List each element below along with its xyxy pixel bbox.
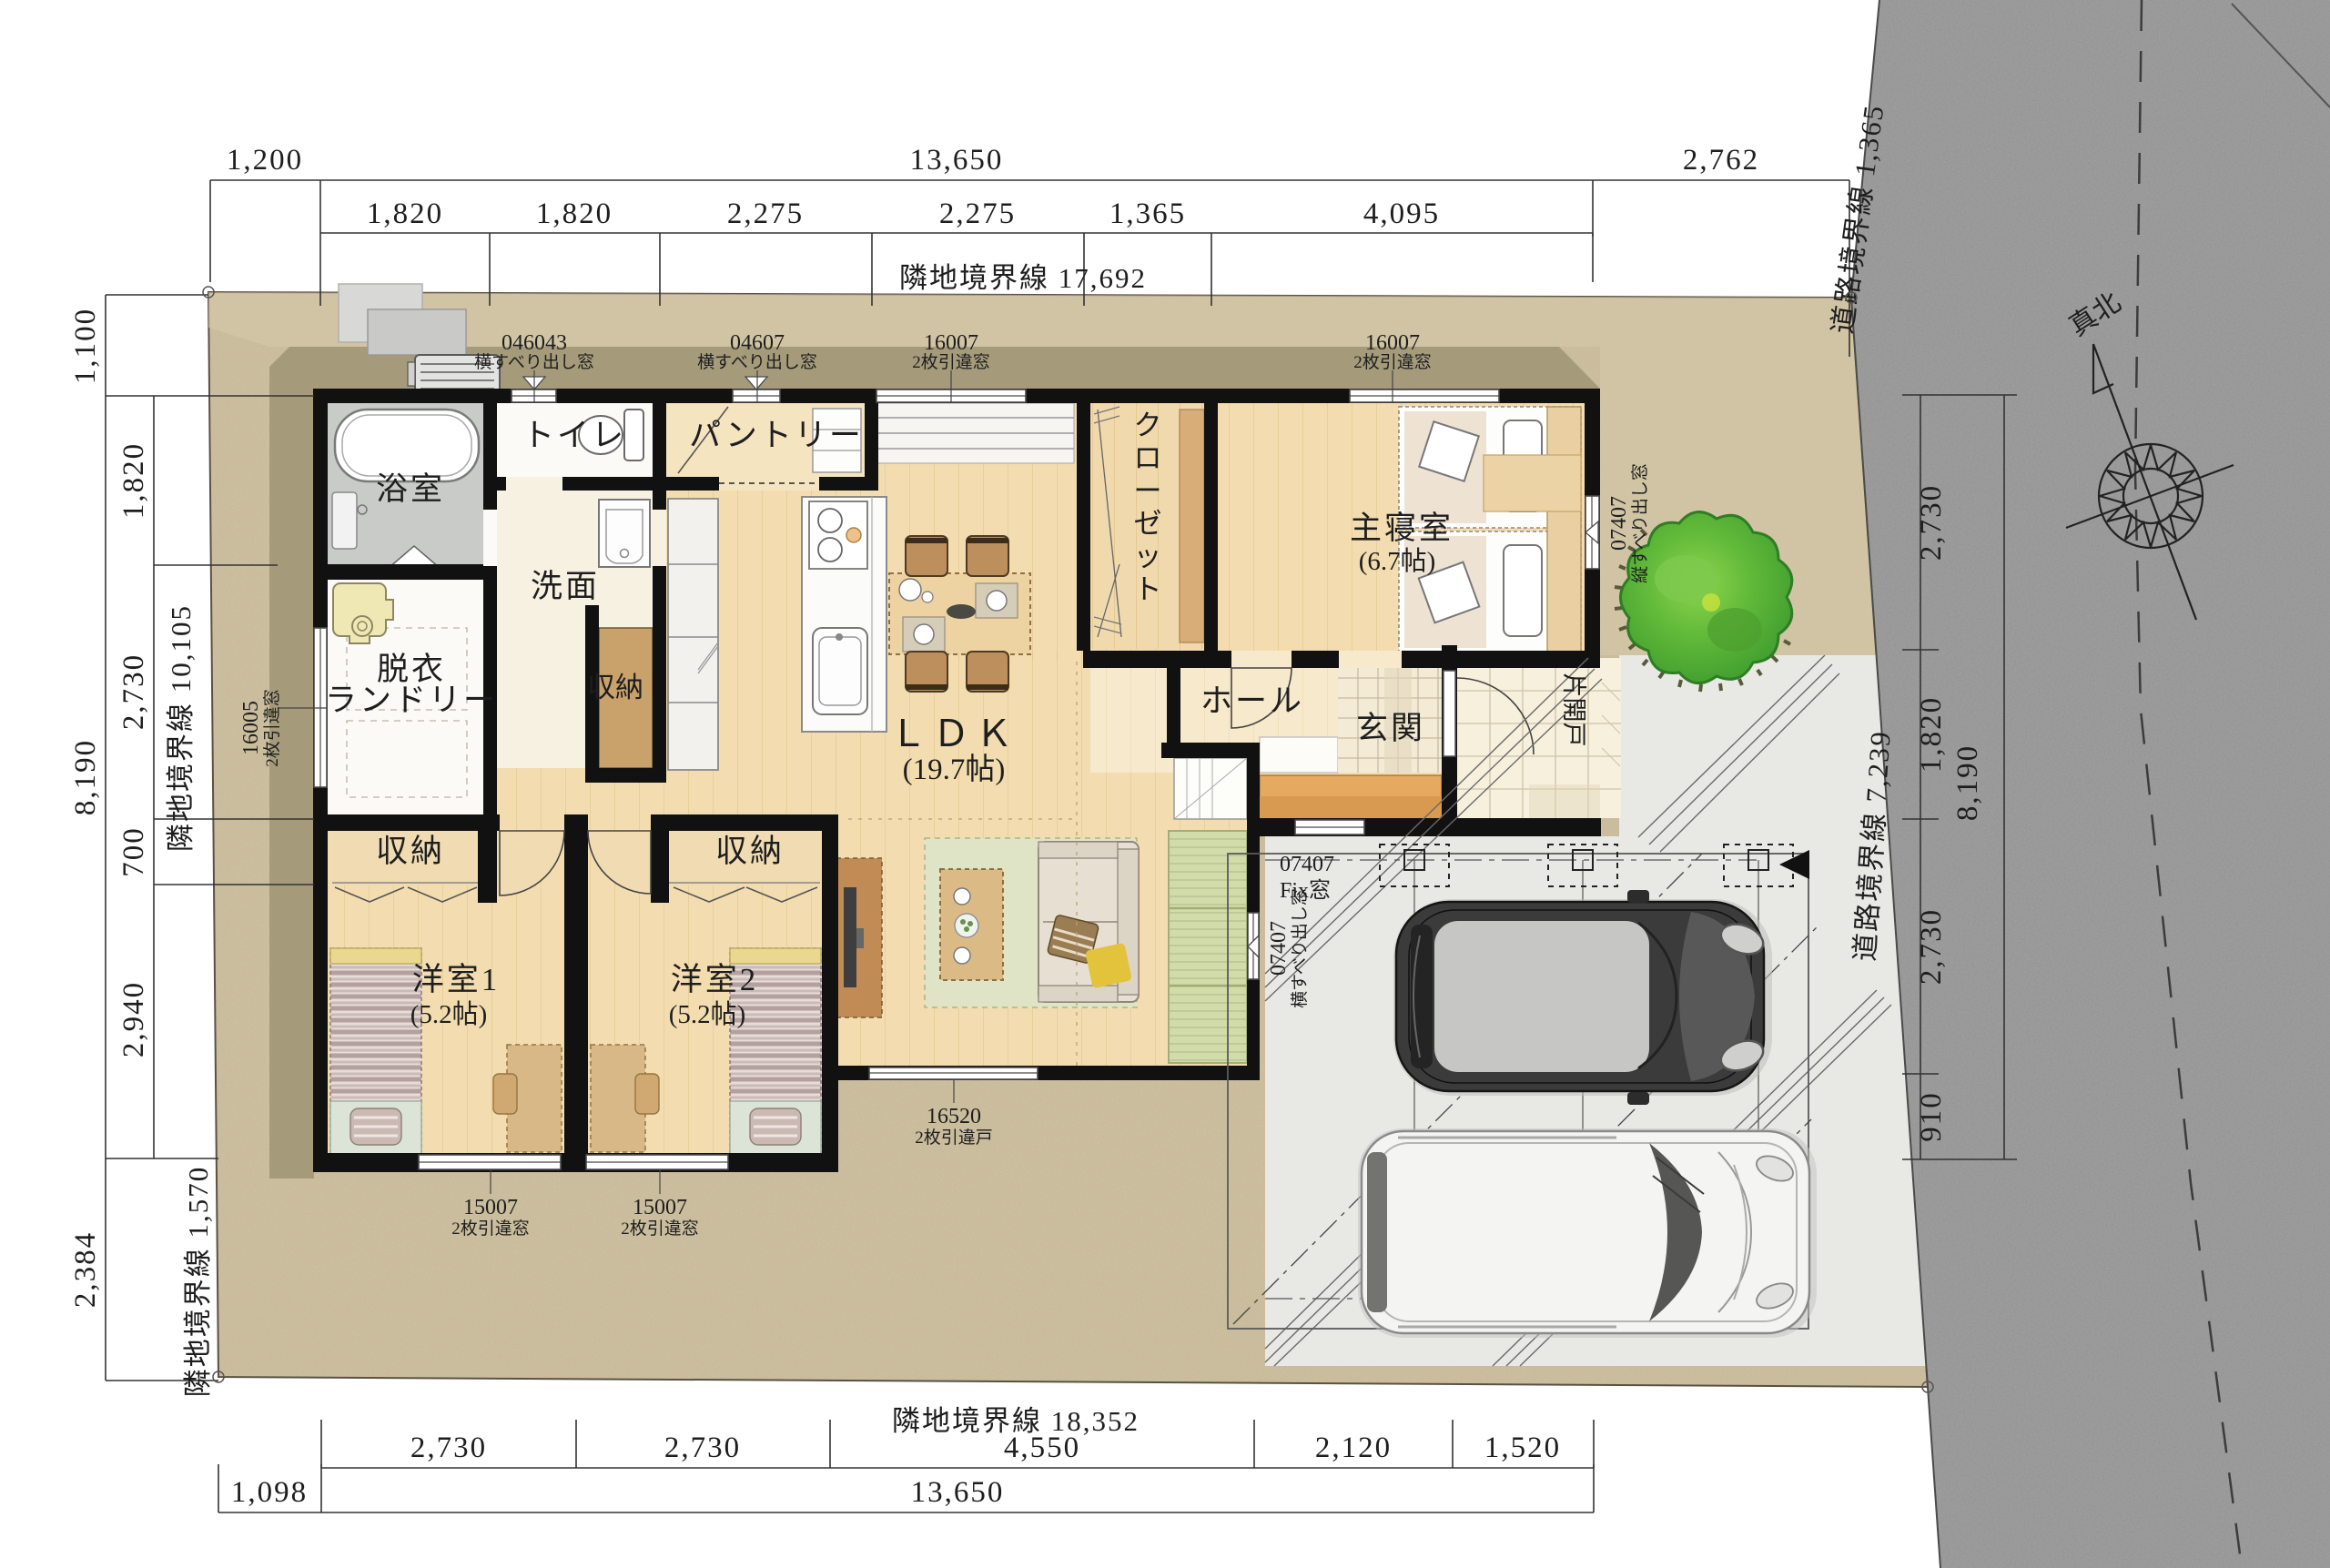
svg-text:1,098: 1,098 bbox=[231, 1476, 308, 1509]
svg-text:ロ: ロ bbox=[1134, 442, 1162, 474]
svg-text:1,820: 1,820 bbox=[117, 442, 150, 519]
svg-text:2,730: 2,730 bbox=[410, 1431, 487, 1464]
svg-text:2,384: 2,384 bbox=[69, 1231, 102, 1308]
svg-text:8,190: 8,190 bbox=[1951, 744, 1984, 821]
svg-text:1,820: 1,820 bbox=[1915, 696, 1948, 773]
svg-text:洋室2: 洋室2 bbox=[671, 962, 759, 997]
svg-text:収納: 収納 bbox=[587, 672, 643, 703]
svg-text:2,275: 2,275 bbox=[727, 197, 804, 230]
svg-text:(5.2帖): (5.2帖) bbox=[669, 999, 746, 1029]
svg-text:(6.7帖): (6.7帖) bbox=[1359, 546, 1436, 576]
svg-text:片開戸: 片開戸 bbox=[1560, 673, 1587, 747]
svg-text:2枚引違窓: 2枚引違窓 bbox=[451, 1219, 530, 1239]
svg-text:収納: 収納 bbox=[715, 834, 785, 869]
svg-text:横すべり出し窓: 横すべり出し窓 bbox=[697, 352, 817, 372]
svg-text:07407: 07407 bbox=[1267, 921, 1291, 976]
svg-text:910: 910 bbox=[1915, 1091, 1948, 1142]
svg-text:2,275: 2,275 bbox=[939, 197, 1016, 230]
svg-text:16007: 16007 bbox=[1365, 331, 1420, 355]
svg-text:16007: 16007 bbox=[924, 331, 978, 355]
svg-text:2,940: 2,940 bbox=[117, 981, 150, 1057]
svg-text:(19.7帖): (19.7帖) bbox=[903, 753, 1006, 786]
svg-text:04607: 04607 bbox=[730, 331, 785, 355]
svg-text:15007: 15007 bbox=[633, 1196, 687, 1219]
svg-text:主寝室: 主寝室 bbox=[1350, 511, 1454, 546]
svg-text:横すべり出し窓: 横すべり出し窓 bbox=[474, 352, 594, 372]
svg-text:ク: ク bbox=[1134, 410, 1162, 441]
svg-text:隣地境界線 18,352: 隣地境界線 18,352 bbox=[892, 1405, 1140, 1437]
svg-text:玄関: 玄関 bbox=[1356, 711, 1425, 746]
svg-text:2枚引違窓: 2枚引違窓 bbox=[1353, 352, 1432, 372]
svg-text:13,650: 13,650 bbox=[911, 1476, 1005, 1509]
svg-text:ホール: ホール bbox=[1200, 683, 1304, 719]
svg-text:1,100: 1,100 bbox=[69, 308, 102, 384]
svg-text:2枚引違窓: 2枚引違窓 bbox=[262, 689, 282, 767]
svg-text:2,120: 2,120 bbox=[1315, 1431, 1392, 1464]
svg-text:ッ: ッ bbox=[1134, 541, 1162, 572]
svg-text:1,200: 1,200 bbox=[227, 144, 303, 177]
svg-text:13,650: 13,650 bbox=[910, 144, 1004, 177]
svg-text:4,095: 4,095 bbox=[1363, 197, 1440, 230]
svg-text:(5.2帖): (5.2帖) bbox=[410, 999, 488, 1029]
svg-text:パントリー: パントリー bbox=[689, 418, 864, 453]
svg-text:2枚引違窓: 2枚引違窓 bbox=[621, 1219, 699, 1239]
svg-text:横すべり出し窓: 横すべり出し窓 bbox=[1290, 888, 1310, 1008]
svg-text:16005: 16005 bbox=[239, 701, 263, 755]
svg-text:2,730: 2,730 bbox=[1915, 908, 1948, 985]
svg-text:洗面: 洗面 bbox=[531, 569, 600, 604]
svg-text:ゼ: ゼ bbox=[1134, 508, 1162, 540]
svg-text:07407: 07407 bbox=[1607, 496, 1631, 551]
svg-text:2,730: 2,730 bbox=[1915, 484, 1948, 561]
svg-text:ト: ト bbox=[1134, 573, 1162, 605]
svg-text:2枚引違窓: 2枚引違窓 bbox=[912, 352, 990, 372]
svg-text:トイレ: トイレ bbox=[522, 418, 626, 453]
svg-text:隣地境界線 1,570: 隣地境界線 1,570 bbox=[182, 1166, 214, 1398]
svg-text:隣地境界線 10,105: 隣地境界線 10,105 bbox=[165, 604, 197, 852]
svg-text:1,520: 1,520 bbox=[1484, 1431, 1561, 1464]
svg-text:2,762: 2,762 bbox=[1683, 144, 1759, 177]
svg-text:Fix窓: Fix窓 bbox=[1280, 878, 1331, 903]
svg-text:洋室1: 洋室1 bbox=[412, 962, 501, 997]
svg-text:隣地境界線 17,692: 隣地境界線 17,692 bbox=[899, 262, 1147, 294]
svg-text:ランドリー: ランドリー bbox=[325, 683, 498, 718]
svg-text:16520: 16520 bbox=[927, 1105, 981, 1128]
svg-text:ＬＤＫ: ＬＤＫ bbox=[890, 713, 1018, 754]
svg-text:1,365: 1,365 bbox=[1109, 197, 1186, 230]
svg-text:浴室: 浴室 bbox=[376, 471, 445, 507]
svg-text:2,730: 2,730 bbox=[117, 653, 150, 730]
svg-text:1,820: 1,820 bbox=[536, 197, 613, 230]
svg-text:046043: 046043 bbox=[501, 331, 567, 355]
svg-text:8,190: 8,190 bbox=[69, 739, 102, 815]
svg-text:縦すべり出し窓: 縦すべり出し窓 bbox=[1630, 463, 1650, 583]
svg-text:2,730: 2,730 bbox=[664, 1431, 741, 1464]
svg-text:07407: 07407 bbox=[1280, 853, 1334, 876]
svg-text:15007: 15007 bbox=[463, 1196, 518, 1219]
svg-text:1,820: 1,820 bbox=[367, 197, 443, 230]
svg-text:ー: ー bbox=[1134, 475, 1162, 507]
svg-text:700: 700 bbox=[117, 826, 150, 877]
svg-text:2枚引違戸: 2枚引違戸 bbox=[915, 1128, 993, 1148]
svg-text:収納: 収納 bbox=[376, 834, 445, 869]
